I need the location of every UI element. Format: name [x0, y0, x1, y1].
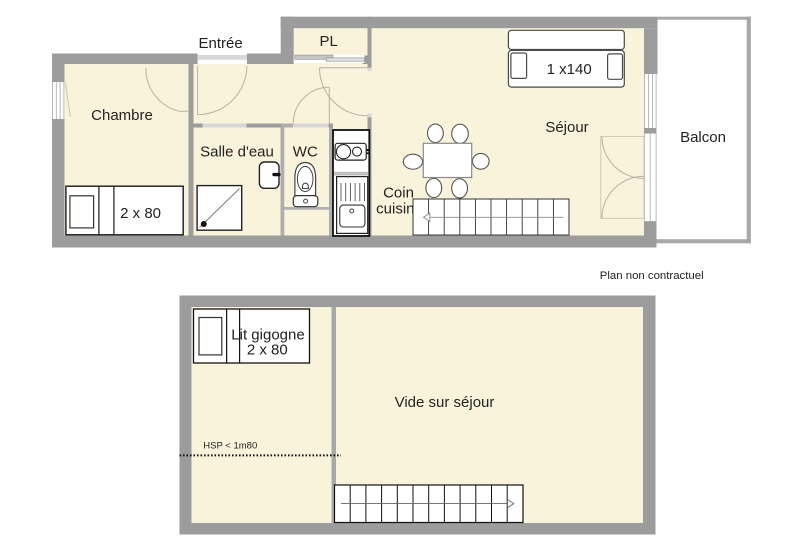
svg-text:WC: WC: [293, 144, 318, 161]
svg-text:Plan non contractuel: Plan non contractuel: [600, 270, 704, 282]
svg-text:Salle d'eau: Salle d'eau: [200, 144, 274, 161]
svg-text:1 x140: 1 x140: [547, 61, 592, 78]
svg-text:Séjour: Séjour: [545, 119, 588, 136]
svg-text:2 x 80: 2 x 80: [247, 342, 288, 359]
svg-text:2 x 80: 2 x 80: [120, 205, 161, 222]
svg-text:Coin: Coin: [383, 185, 414, 202]
svg-text:PL: PL: [320, 33, 338, 50]
svg-text:Entrée: Entrée: [198, 35, 242, 52]
svg-text:Vide sur séjour: Vide sur séjour: [395, 394, 495, 411]
svg-text:Balcon: Balcon: [680, 129, 726, 146]
svg-text:Chambre: Chambre: [91, 107, 153, 124]
svg-text:HSP < 1m80: HSP < 1m80: [203, 441, 257, 452]
